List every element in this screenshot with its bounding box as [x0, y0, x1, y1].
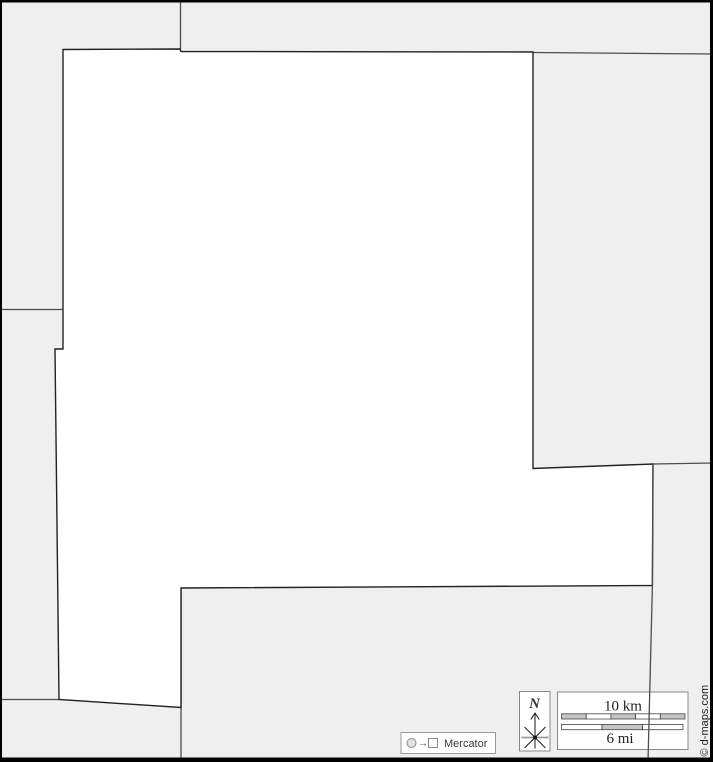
scale-bar: 10 km 6 mi — [558, 692, 689, 750]
frame-bottom — [0, 758, 713, 762]
frame-top — [0, 0, 713, 3]
scale-mi-label: 6 mi — [606, 731, 633, 747]
scale-segment — [562, 714, 587, 719]
projection-label: Mercator — [444, 738, 488, 750]
scale-segment — [602, 725, 643, 730]
compass-center-dot — [533, 736, 537, 740]
globe-icon — [407, 739, 416, 748]
scale-km-bar — [562, 714, 686, 719]
scale-segment — [636, 714, 661, 719]
projection-arrow-icon: → — [418, 738, 429, 750]
copyright-text: © d-maps.com — [699, 685, 711, 757]
map-canvas: N 10 km 6 mi → Mercator © d-maps.com — [0, 0, 713, 762]
north-label: N — [528, 696, 541, 712]
scale-segment — [562, 725, 603, 730]
north-indicator: N — [520, 692, 551, 752]
flat-map-icon — [429, 739, 438, 748]
scale-km-label: 10 km — [604, 699, 642, 715]
map-stage: N 10 km 6 mi → Mercator © d-maps.com — [0, 0, 713, 762]
scale-segment — [611, 714, 636, 719]
scale-segment — [660, 714, 685, 719]
scale-segment — [586, 714, 611, 719]
frame-left — [0, 0, 2, 762]
scale-mi-bar — [562, 725, 684, 730]
projection-badge: → Mercator — [401, 733, 496, 754]
